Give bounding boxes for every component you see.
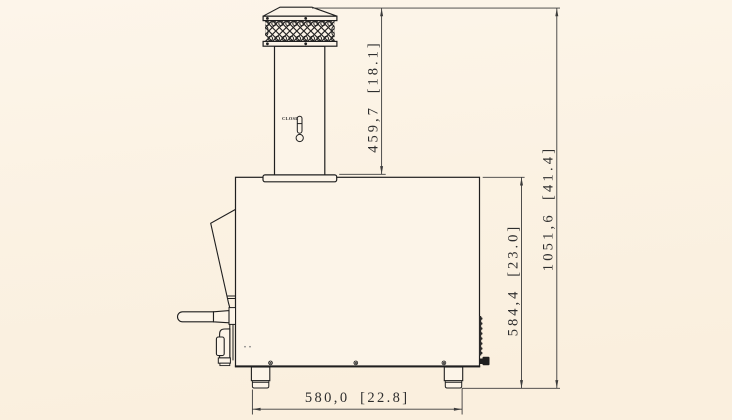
- svg-text:584,4 [23.0]: 584,4 [23.0]: [505, 224, 521, 336]
- svg-text:CLOSE: CLOSE: [282, 116, 299, 121]
- svg-text:580,0 [22.8]: 580,0 [22.8]: [305, 390, 410, 406]
- svg-text:459,7 [18.1]: 459,7 [18.1]: [365, 40, 381, 152]
- svg-text:1051,6 [41.4]: 1051,6 [41.4]: [541, 146, 557, 272]
